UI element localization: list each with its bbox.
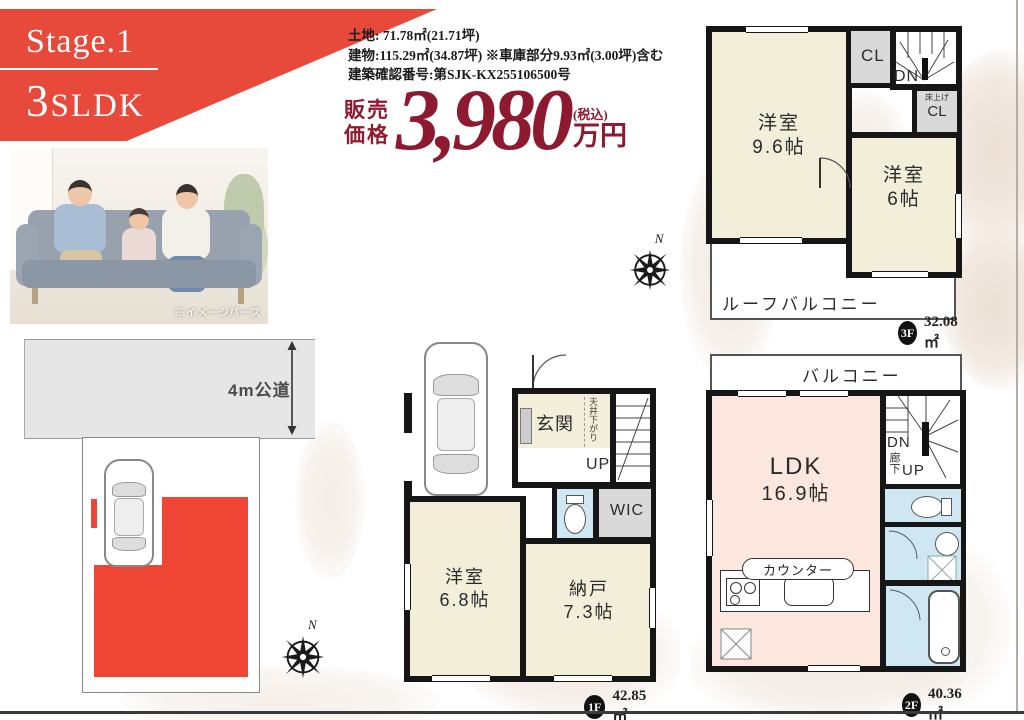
wic-label: WIC: [610, 502, 644, 520]
floor-drain-icon: [720, 628, 752, 660]
family-photo: ※イメージパース: [10, 148, 268, 324]
window-marker: [746, 26, 808, 33]
window-marker: [649, 588, 656, 628]
raised-closet: 床上げ CL: [912, 86, 962, 138]
building-footprint: [162, 497, 248, 569]
window-marker: [808, 665, 860, 672]
car-rear-window: [112, 537, 147, 551]
door-arc-icon: [818, 156, 852, 190]
bathroom: [880, 580, 966, 672]
raised-floor-note: 床上げ: [917, 92, 957, 103]
roof-balcony-label: ルーフバルコニー: [722, 290, 881, 315]
floorplan-3f: ルーフバルコニー CL DN 床上げ CL 洋室 9.6帖: [706, 24, 962, 336]
price-unit: (税込) 万円: [573, 104, 627, 150]
burner: [730, 595, 740, 605]
price-block: 販売 価格 3,980 (税込) 万円: [344, 86, 627, 158]
stairs-1f: [610, 388, 656, 488]
closet-label: CL: [861, 46, 885, 66]
floorplan-1f: 玄関 天井下がり UP WIC 洋室 6.8帖: [402, 338, 656, 710]
photo-caption: ※イメージパース: [174, 304, 261, 320]
washbasin-icon: [935, 532, 959, 556]
toilet-icon: [911, 496, 943, 518]
floorplan-2f: バルコニー LDK 16.9帖 DN 廊下 UP: [706, 350, 966, 712]
car-windshield: [112, 482, 147, 498]
counter-label-box: カウンター: [742, 558, 854, 580]
person-mother: [162, 208, 210, 260]
room-6-label: 洋室 6帖: [859, 164, 949, 212]
washroom: [880, 522, 966, 586]
footprint-marker: [91, 499, 97, 528]
floor-1f-badge: 1F 42.85㎡: [584, 688, 656, 720]
balcony-label: バルコニー: [802, 362, 902, 387]
window-marker: [738, 390, 786, 397]
window-marker: [404, 564, 411, 610]
window-marker: [432, 675, 490, 682]
counter-label: カウンター: [763, 560, 833, 579]
bottom-border: [0, 711, 1024, 714]
window-marker: [955, 194, 962, 238]
car-rear-window: [433, 454, 479, 474]
door-arc-icon: [530, 352, 568, 390]
person-father-head: [68, 180, 92, 206]
road-label: 4m公道: [228, 376, 291, 401]
sofa-leg: [238, 288, 244, 304]
entrance-label: 玄関: [536, 410, 574, 436]
ceiling-note: 天井下がり: [584, 397, 600, 447]
stove-icon: [726, 578, 760, 606]
north-label: N: [655, 231, 664, 247]
room-9-6-label: 洋室 9.6帖: [734, 112, 824, 160]
room-6-8-label: 洋室 6.8帖: [420, 566, 510, 611]
car-icon: [104, 459, 154, 567]
price-label: 販売 価格: [344, 98, 390, 148]
garage-wall: [404, 393, 412, 433]
car-icon: [424, 342, 488, 496]
watermark-blob: [295, 420, 365, 580]
window-marker: [872, 271, 928, 278]
banner-divider: [0, 68, 158, 70]
raised-closet-label: CL: [917, 103, 957, 120]
stairs-dn-label: DN: [887, 434, 911, 451]
building-area-line: 建物:115.29㎡(34.87坪) ※車庫部分9.93㎡(3.00坪)含む: [348, 46, 663, 66]
flyer-page: Stage.1 3SLDK 土地: 71.78㎡(21.71坪) 建物:115.…: [0, 0, 1024, 720]
door-arc-icon: [887, 529, 919, 561]
burner: [730, 582, 742, 594]
price-amount: 3,980: [396, 86, 569, 156]
sink-icon: [784, 576, 834, 606]
person-father: [54, 204, 106, 254]
toilet-icon: [564, 504, 586, 534]
road-width-arrow-icon: [284, 341, 300, 435]
stairs-up-label: UP: [902, 462, 925, 479]
building-footprint: [94, 565, 248, 677]
stairs-dn-label: DN: [894, 68, 919, 86]
stairs-up-label: UP: [586, 456, 610, 474]
garage-wall: [404, 481, 412, 497]
window-marker: [800, 390, 848, 397]
floor-3f-badge: 3F 32.08㎡: [898, 314, 963, 352]
north-label: N: [308, 617, 317, 633]
storage-label: 納戸 7.3帖: [544, 578, 634, 623]
stairs-icon: [616, 394, 650, 482]
car-roof: [437, 398, 475, 451]
right-border: [1016, 0, 1018, 711]
burner: [744, 582, 756, 594]
toilet-room: [552, 484, 598, 544]
window-marker: [554, 675, 612, 682]
sofa-seat: [22, 260, 256, 288]
toilet-icon: [941, 498, 952, 516]
person-child-head: [129, 208, 149, 230]
land-area-line: 土地: 71.78㎡(21.71坪): [348, 26, 663, 46]
floor-2f-badge: 2F 40.36㎡: [902, 686, 967, 720]
bathtub-drain: [941, 647, 950, 656]
car-windshield: [433, 374, 479, 396]
window-marker: [706, 500, 713, 556]
window-marker: [740, 237, 802, 244]
sofa-leg: [32, 288, 38, 304]
person-mother-head: [176, 184, 198, 209]
ldk-label: LDK 16.9帖: [751, 452, 841, 507]
toilet-icon: [566, 495, 584, 504]
car-roof: [114, 498, 143, 535]
bathtub-icon: [928, 590, 960, 664]
door-arc-icon: [888, 588, 922, 622]
shoe-cabinet: [520, 408, 532, 444]
compass-icon: N: [626, 246, 674, 294]
hall-label: 廊下: [886, 452, 902, 474]
compass-icon: N: [278, 632, 328, 682]
